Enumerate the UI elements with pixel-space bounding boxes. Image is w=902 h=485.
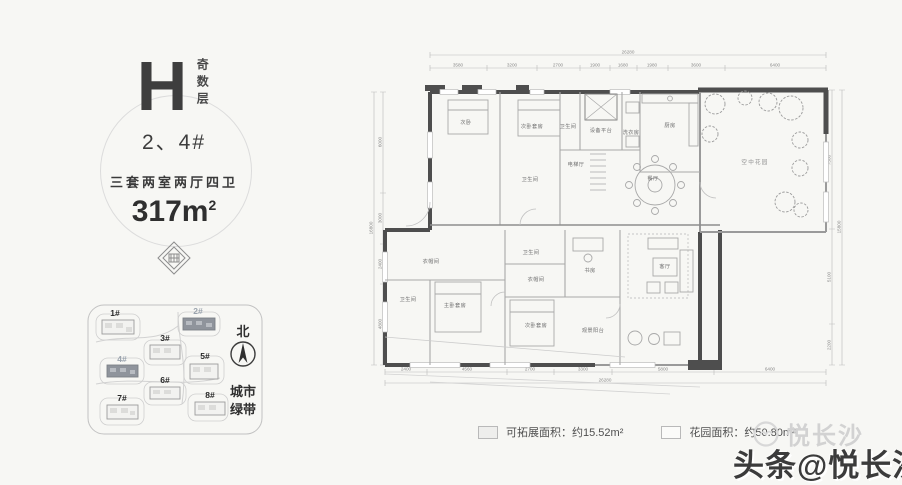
- floor-note: 奇数层: [194, 58, 211, 109]
- room-label-bath-3: 卫生间: [400, 295, 417, 303]
- brand-logo: [58, 239, 290, 282]
- garden-edge-lines: [385, 374, 700, 394]
- room-label-bedroom-suite-bottom: 次卧套房: [525, 321, 547, 329]
- dim-total-left: 16800: [369, 221, 374, 234]
- room-label-bedroom-suite-top: 次卧套房: [521, 122, 543, 130]
- legend-swatch-expandable: [478, 426, 498, 439]
- room-label-view-balcony: 观景阳台: [582, 326, 604, 334]
- building-label-highlighted: 4#: [117, 354, 127, 364]
- diamond-logo-icon: [155, 239, 193, 277]
- site-plan: 1# 2# 3# 4# 5# 6# 7#: [60, 292, 275, 440]
- area-number: 317m: [132, 195, 209, 228]
- green-belt-line1: 城市: [230, 384, 256, 399]
- floor-plan: 26280 3580 3200 2700 1900 1680 1980 3600…: [370, 42, 855, 407]
- building-numbers: 2、4#: [58, 126, 290, 156]
- site-building-1: 1#: [102, 308, 134, 334]
- room-label-cloakroom-1: 衣帽间: [423, 257, 440, 265]
- room-label-equipment-platform: 设备平台: [590, 126, 612, 134]
- dim-label: 6000: [378, 136, 383, 147]
- dim-label: 3000: [378, 212, 383, 223]
- dim-label: 3600: [691, 63, 702, 68]
- building-label: 3#: [160, 333, 170, 343]
- dim-total-bottom: 26280: [599, 378, 612, 383]
- building-label: 1#: [110, 308, 120, 318]
- flyer-page: H 奇数层 2、4# 三套两室两厅四卫 317m2: [0, 0, 902, 485]
- dim-label: 3580: [453, 63, 464, 68]
- building-label-highlighted: 2#: [193, 306, 203, 316]
- room-label-cloakroom-2: 衣帽间: [528, 275, 545, 283]
- info-panel: H 奇数层 2、4# 三套两室两厅四卫 317m2: [58, 48, 290, 282]
- room-label-sky-garden: 空中花园: [741, 158, 768, 166]
- room-label-bath-1: 卫生间: [560, 122, 577, 130]
- room-label-bath-4: 卫生间: [523, 248, 540, 256]
- north-label: 北: [236, 324, 249, 339]
- dim-label: 5100: [827, 271, 832, 282]
- building-label: 8#: [205, 390, 215, 400]
- room-label-bath-2: 卫生间: [522, 175, 539, 183]
- area-value: 317m2: [58, 195, 290, 229]
- dim-label: 2200: [827, 339, 832, 350]
- building-label: 7#: [117, 393, 127, 403]
- site-building-4: 4#: [107, 354, 138, 377]
- garden-plants: [702, 91, 808, 217]
- dimension-lines: [371, 52, 845, 386]
- dim-label: 3200: [507, 63, 518, 68]
- site-building-3: 3#: [150, 333, 180, 359]
- dim-label: 1980: [647, 63, 658, 68]
- legend-item-expandable: 可拓展面积：约15.52m²: [478, 424, 623, 440]
- room-label-kitchen: 厨房: [664, 121, 675, 129]
- room-label-master-suite: 主卧套房: [444, 301, 466, 309]
- legend: 可拓展面积：约15.52m² 花园面积：约50.80m²: [478, 424, 796, 440]
- room-label-bedroom2: 次卧: [460, 118, 471, 126]
- dim-label: 2400: [378, 258, 383, 269]
- room-label-elevator-hall: 电梯厅: [568, 160, 585, 168]
- dim-label: 5800: [658, 367, 669, 372]
- layout-description: 三套两室两厅四卫: [58, 172, 290, 191]
- site-building-7: 7#: [107, 393, 138, 419]
- site-building-2: 2#: [183, 306, 215, 330]
- dim-label: 2700: [553, 63, 564, 68]
- dim-label: 6400: [765, 367, 776, 372]
- watermark-big: 头条@悦长沙: [733, 440, 902, 485]
- site-building-6: 6#: [150, 375, 180, 399]
- dim-total-right: 15800: [837, 220, 842, 233]
- room-label-study: 书房: [584, 266, 595, 274]
- dim-total-top: 26280: [622, 50, 635, 55]
- legend-label-expandable: 可拓展面积：约15.52m²: [506, 424, 623, 440]
- dim-label: 4560: [462, 367, 473, 372]
- site-building-5: 5#: [190, 351, 218, 379]
- building-label: 6#: [160, 375, 170, 385]
- plan-letter: H: [137, 48, 188, 124]
- legend-swatch-garden: [661, 426, 681, 439]
- dim-label: 1900: [590, 63, 601, 68]
- dim-label: 6400: [770, 63, 781, 68]
- dim-label: 1680: [618, 63, 629, 68]
- area-superscript: 2: [208, 197, 216, 213]
- room-label-living: 客厅: [659, 262, 670, 270]
- green-belt-line2: 绿带: [230, 402, 256, 417]
- room-label-laundry: 洗衣房: [623, 128, 640, 136]
- dim-label: 3300: [578, 367, 589, 372]
- dim-label: 4800: [378, 318, 383, 329]
- building-label: 5#: [200, 351, 210, 361]
- room-label-dining: 餐厅: [647, 174, 658, 182]
- north-compass-icon: 北: [231, 324, 255, 366]
